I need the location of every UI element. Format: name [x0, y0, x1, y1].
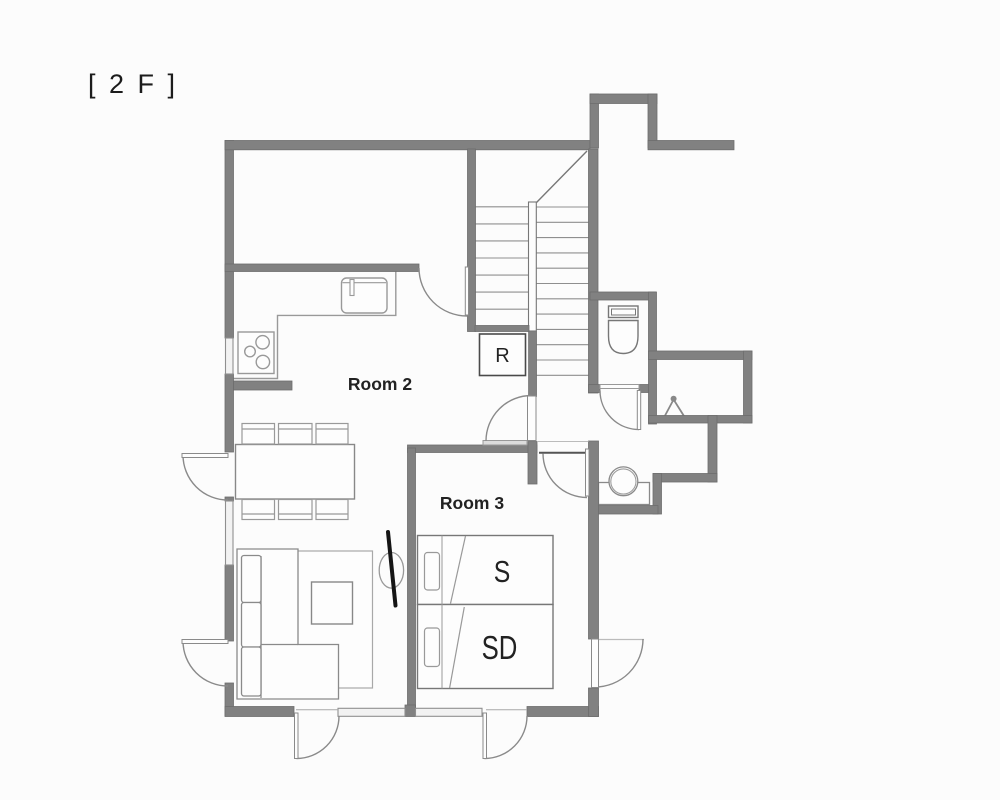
svg-text:R: R: [495, 345, 509, 367]
svg-text:SD: SD: [482, 630, 518, 667]
svg-text:S: S: [494, 554, 511, 588]
svg-text:Room 2: Room 2: [348, 374, 412, 394]
svg-text:[ 2 F ]: [ 2 F ]: [88, 69, 178, 99]
svg-text:Room 3: Room 3: [440, 493, 504, 513]
